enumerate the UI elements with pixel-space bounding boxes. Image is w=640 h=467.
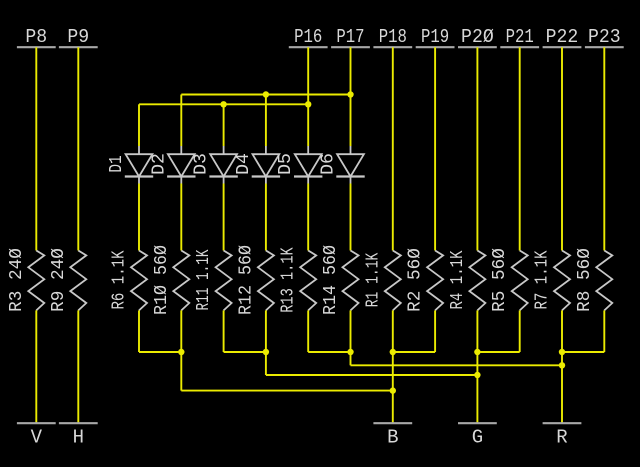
svg-text:P22: P22 — [546, 26, 579, 48]
svg-text:R8 56Ø: R8 56Ø — [575, 248, 595, 312]
svg-text:P16: P16 — [294, 26, 322, 48]
svg-text:P18: P18 — [379, 26, 407, 48]
svg-text:R1 1.1K: R1 1.1K — [363, 253, 383, 308]
svg-text:R5 56Ø: R5 56Ø — [490, 248, 510, 312]
svg-text:P21: P21 — [506, 26, 534, 48]
svg-text:D1: D1 — [107, 155, 127, 172]
svg-text:P9: P9 — [67, 26, 89, 48]
svg-text:R12 56Ø: R12 56Ø — [236, 245, 256, 315]
svg-text:R7 1.1K: R7 1.1K — [533, 250, 553, 309]
svg-text:R3 24Ø: R3 24Ø — [7, 248, 27, 312]
svg-text:V: V — [31, 427, 43, 449]
svg-text:D5: D5 — [276, 153, 296, 175]
svg-text:R6 1.1K: R6 1.1K — [110, 250, 130, 309]
svg-text:R: R — [556, 427, 567, 449]
svg-text:D2: D2 — [149, 153, 169, 175]
svg-text:R9 24Ø: R9 24Ø — [49, 248, 69, 312]
svg-text:H: H — [73, 427, 84, 449]
svg-text:R11 1.1K: R11 1.1K — [194, 249, 214, 310]
svg-text:P23: P23 — [588, 26, 621, 48]
svg-text:D3: D3 — [192, 153, 212, 175]
svg-text:R2 56Ø: R2 56Ø — [406, 248, 426, 312]
svg-text:B: B — [387, 427, 398, 449]
svg-text:R1Ø 56Ø: R1Ø 56Ø — [152, 245, 172, 315]
svg-text:P2Ø: P2Ø — [461, 26, 494, 48]
svg-text:P17: P17 — [336, 26, 364, 48]
svg-text:D4: D4 — [234, 153, 254, 175]
svg-text:P8: P8 — [25, 26, 47, 48]
svg-text:R14 56Ø: R14 56Ø — [321, 245, 341, 315]
svg-text:R4 1.1K: R4 1.1K — [448, 250, 468, 309]
svg-text:D6: D6 — [319, 153, 339, 175]
svg-text:P19: P19 — [421, 26, 449, 48]
svg-text:G: G — [472, 427, 483, 449]
svg-text:R13 1.1K: R13 1.1K — [279, 247, 299, 313]
